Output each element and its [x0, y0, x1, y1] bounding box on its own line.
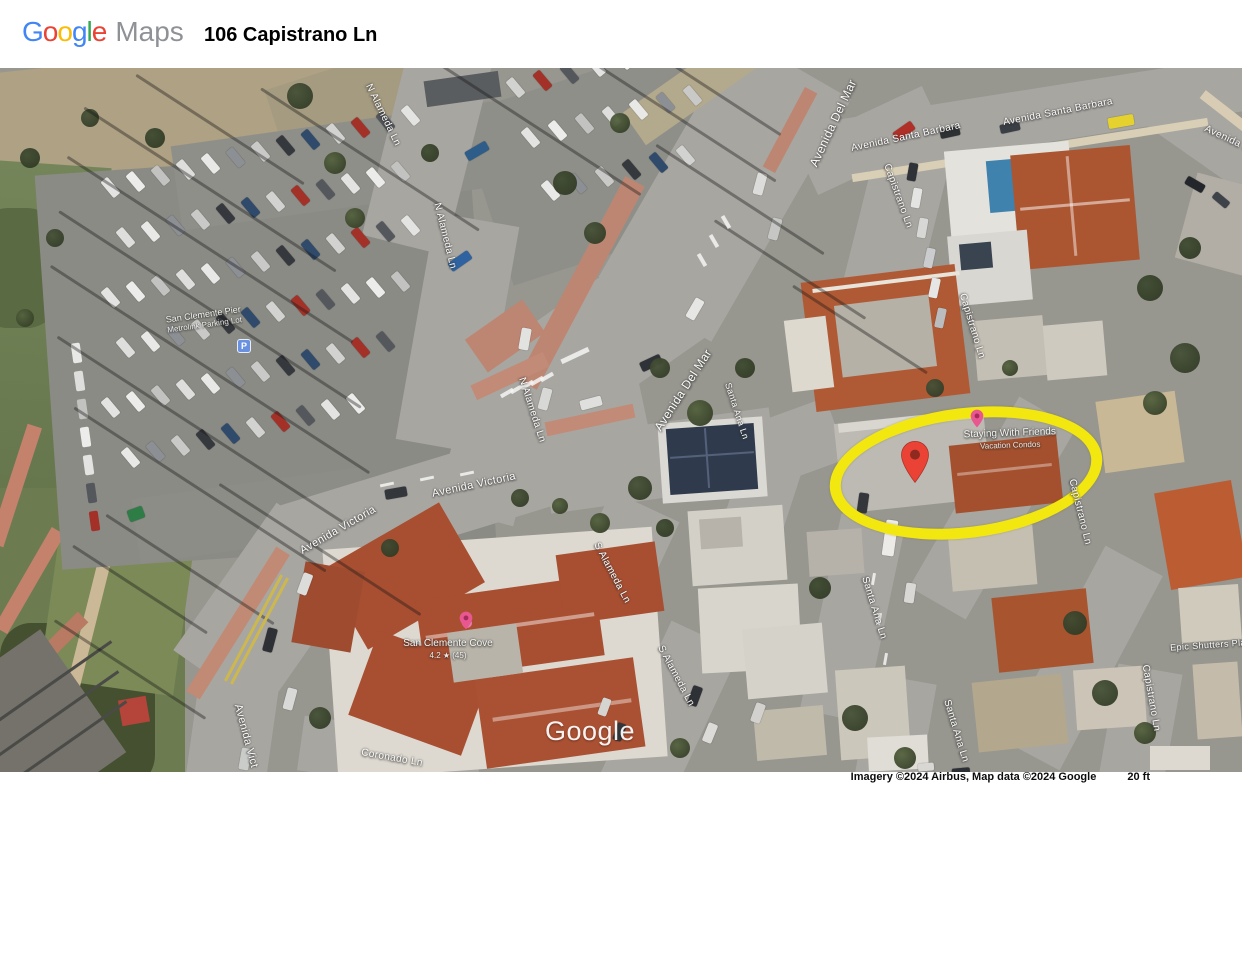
- location-pin-icon[interactable]: [900, 440, 930, 489]
- tree: [16, 309, 34, 327]
- tree: [628, 476, 652, 500]
- building-roof: [1178, 584, 1242, 643]
- tree: [1092, 680, 1118, 706]
- tree: [553, 171, 577, 195]
- logo-letter: G: [22, 16, 43, 47]
- poi-label-line: San Clemente Cove: [403, 638, 493, 651]
- red-roof-hut: [118, 696, 150, 726]
- solar-panels: [959, 242, 993, 271]
- car: [904, 582, 917, 603]
- tree: [1002, 360, 1018, 376]
- address-title: 106 Capistrano Ln: [204, 24, 377, 47]
- tree: [584, 222, 606, 244]
- tree: [20, 148, 40, 168]
- poi-pin-icon: [459, 611, 473, 635]
- tree: [670, 738, 690, 758]
- roof-section: [699, 517, 743, 550]
- tree: [1179, 237, 1201, 259]
- tree: [1143, 391, 1167, 415]
- logo-letter: o: [43, 16, 58, 47]
- tree: [735, 358, 755, 378]
- tree: [324, 152, 346, 174]
- building-roof: [1150, 746, 1210, 770]
- tree: [145, 128, 165, 148]
- logo-letter: o: [57, 16, 72, 47]
- tree: [1170, 343, 1200, 373]
- building-tan-roof: [1095, 391, 1184, 473]
- parking-icon: P: [237, 339, 251, 353]
- tree: [345, 208, 365, 228]
- attribution-text: Imagery ©2024 Airbus, Map data ©2024 Goo…: [851, 771, 1097, 783]
- tree: [309, 707, 331, 729]
- tree: [650, 358, 670, 378]
- lane-marking: [883, 653, 888, 665]
- tree: [1063, 611, 1087, 635]
- scale-label: 20 ft: [1127, 771, 1150, 783]
- building-gray-roof: [1175, 172, 1242, 275]
- logo-letter: e: [92, 16, 107, 47]
- tree: [687, 400, 713, 426]
- building-gray-roof: [1043, 320, 1108, 380]
- tree: [511, 489, 529, 507]
- poi-label: San Clemente Cove4.2 ★ (45): [403, 638, 493, 661]
- tree: [381, 539, 399, 557]
- building-tile-roof: [1154, 480, 1242, 590]
- poi-pin-icon: [970, 409, 984, 433]
- tree: [809, 577, 831, 599]
- car: [282, 687, 297, 711]
- tree: [610, 113, 630, 133]
- poi-label-line: 4.2 ★ (45): [403, 650, 493, 660]
- tree: [842, 705, 868, 731]
- building-roof: [806, 528, 864, 577]
- car: [505, 77, 525, 99]
- logo-letter: g: [72, 16, 87, 47]
- tree: [421, 144, 439, 162]
- tree: [656, 519, 674, 537]
- tree: [46, 229, 64, 247]
- google-maps-logo: GoogleMaps: [22, 16, 184, 48]
- building-white-roof: [784, 316, 834, 393]
- tree: [287, 83, 313, 109]
- tree: [1137, 275, 1163, 301]
- logo-maps-word: Maps: [115, 16, 183, 47]
- building-roof: [742, 623, 828, 700]
- tree: [590, 513, 610, 533]
- tree: [552, 498, 568, 514]
- map-attribution: Imagery ©2024 Airbus, Map data ©2024 Goo…: [0, 771, 1150, 783]
- page-header: GoogleMaps 106 Capistrano Ln: [0, 0, 1242, 68]
- street-label: Santa Ana Ln: [941, 698, 970, 763]
- street-label: Epic Shutters Pla: [1170, 637, 1242, 652]
- resort-tile-roof: [556, 541, 665, 624]
- tree: [894, 747, 916, 769]
- building-roof: [1192, 662, 1242, 740]
- building-roof: [753, 705, 827, 761]
- map-satellite-view[interactable]: N Alameda LnN Alameda LnN Alameda LnAven…: [0, 68, 1242, 772]
- google-watermark: Google: [545, 716, 635, 747]
- building-roof: [972, 673, 1069, 752]
- tree: [926, 379, 944, 397]
